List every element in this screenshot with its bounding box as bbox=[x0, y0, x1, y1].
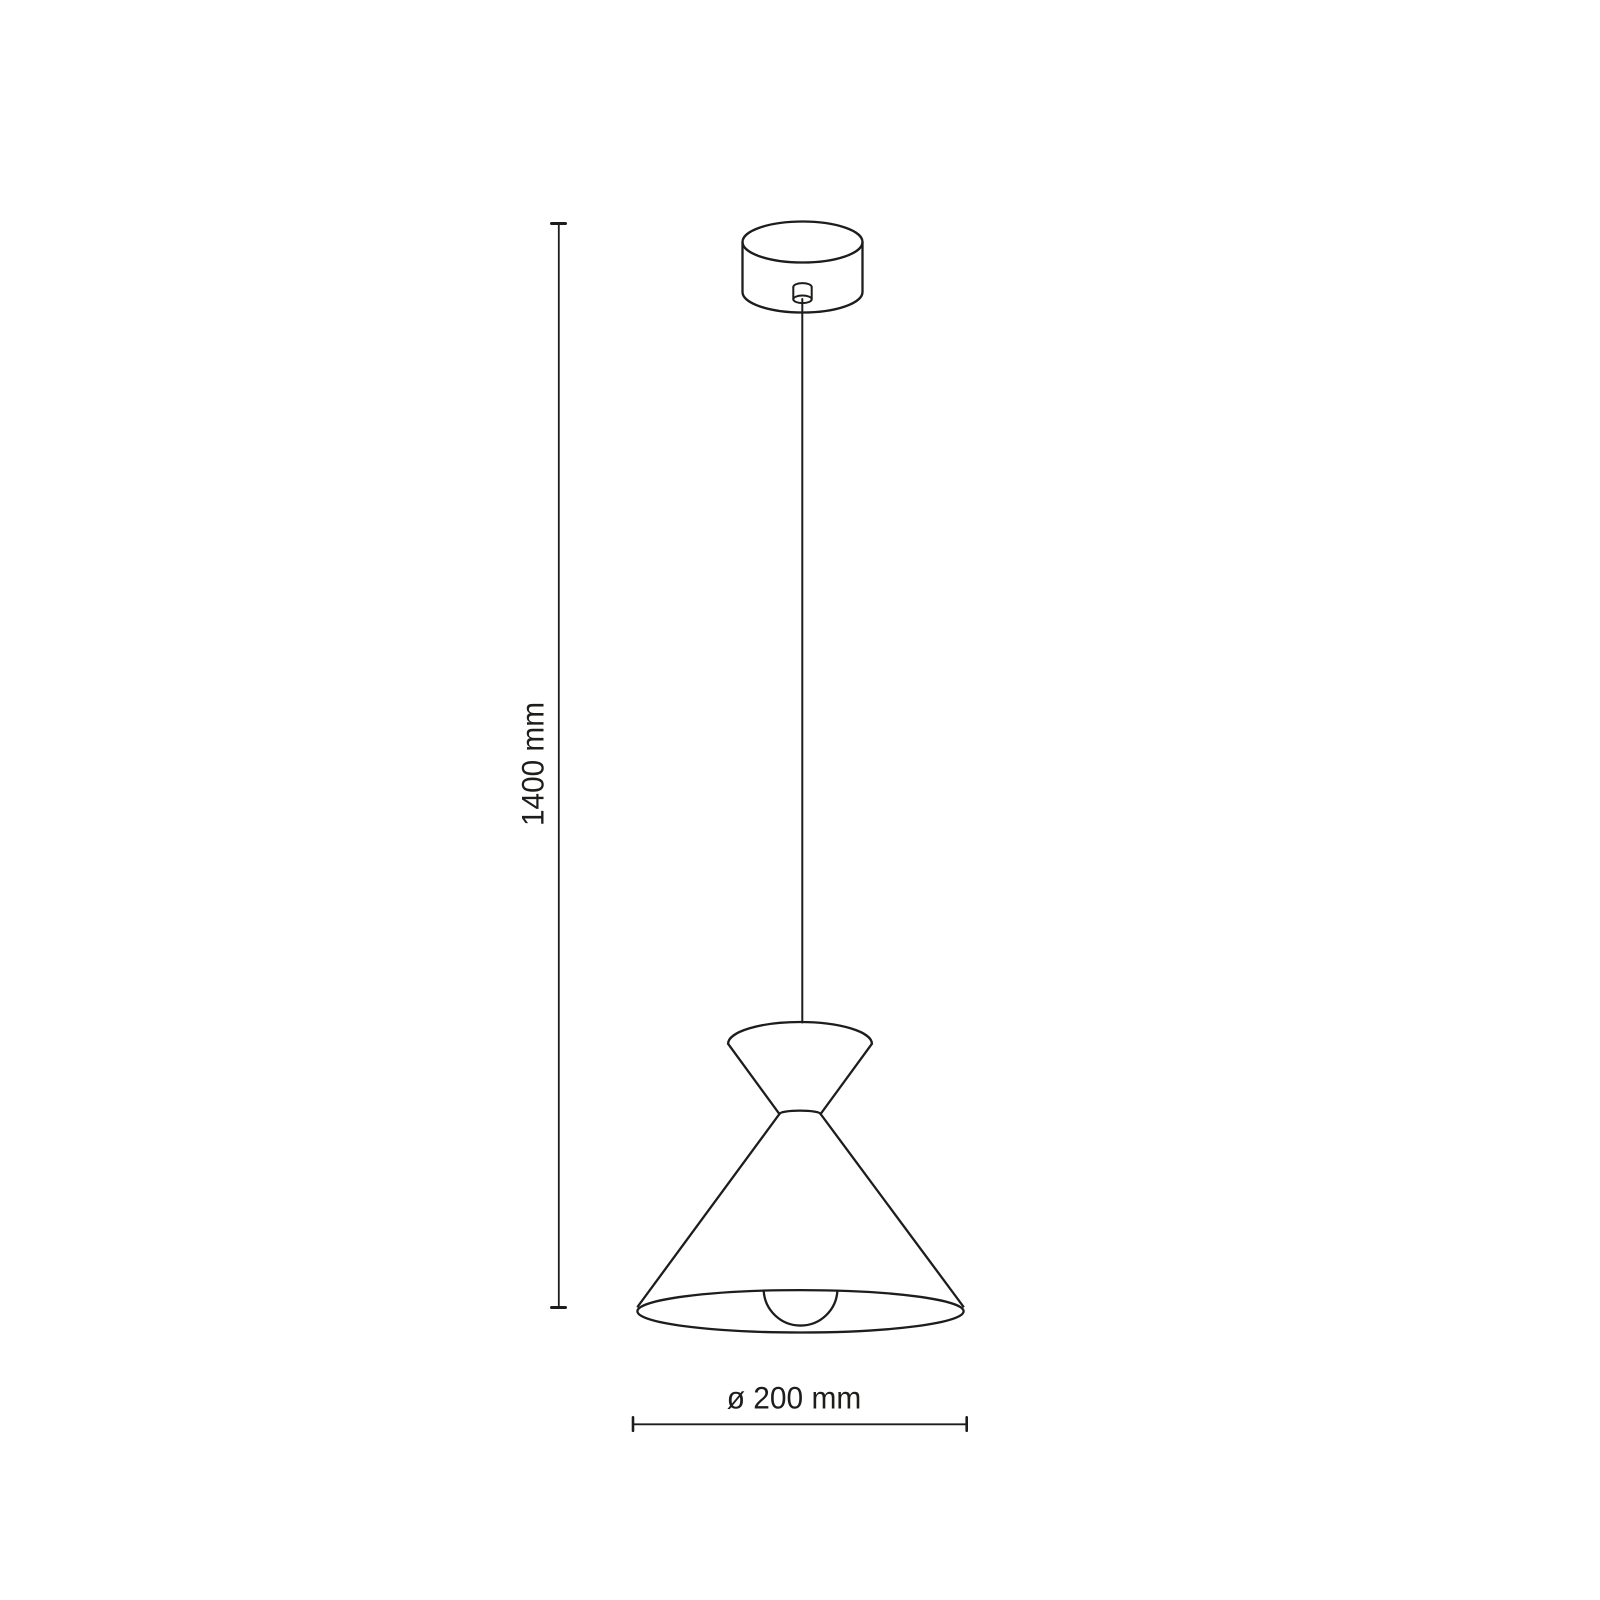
svg-text:ø 200 mm: ø 200 mm bbox=[727, 1380, 862, 1416]
svg-text:1400 mm: 1400 mm bbox=[515, 702, 551, 826]
